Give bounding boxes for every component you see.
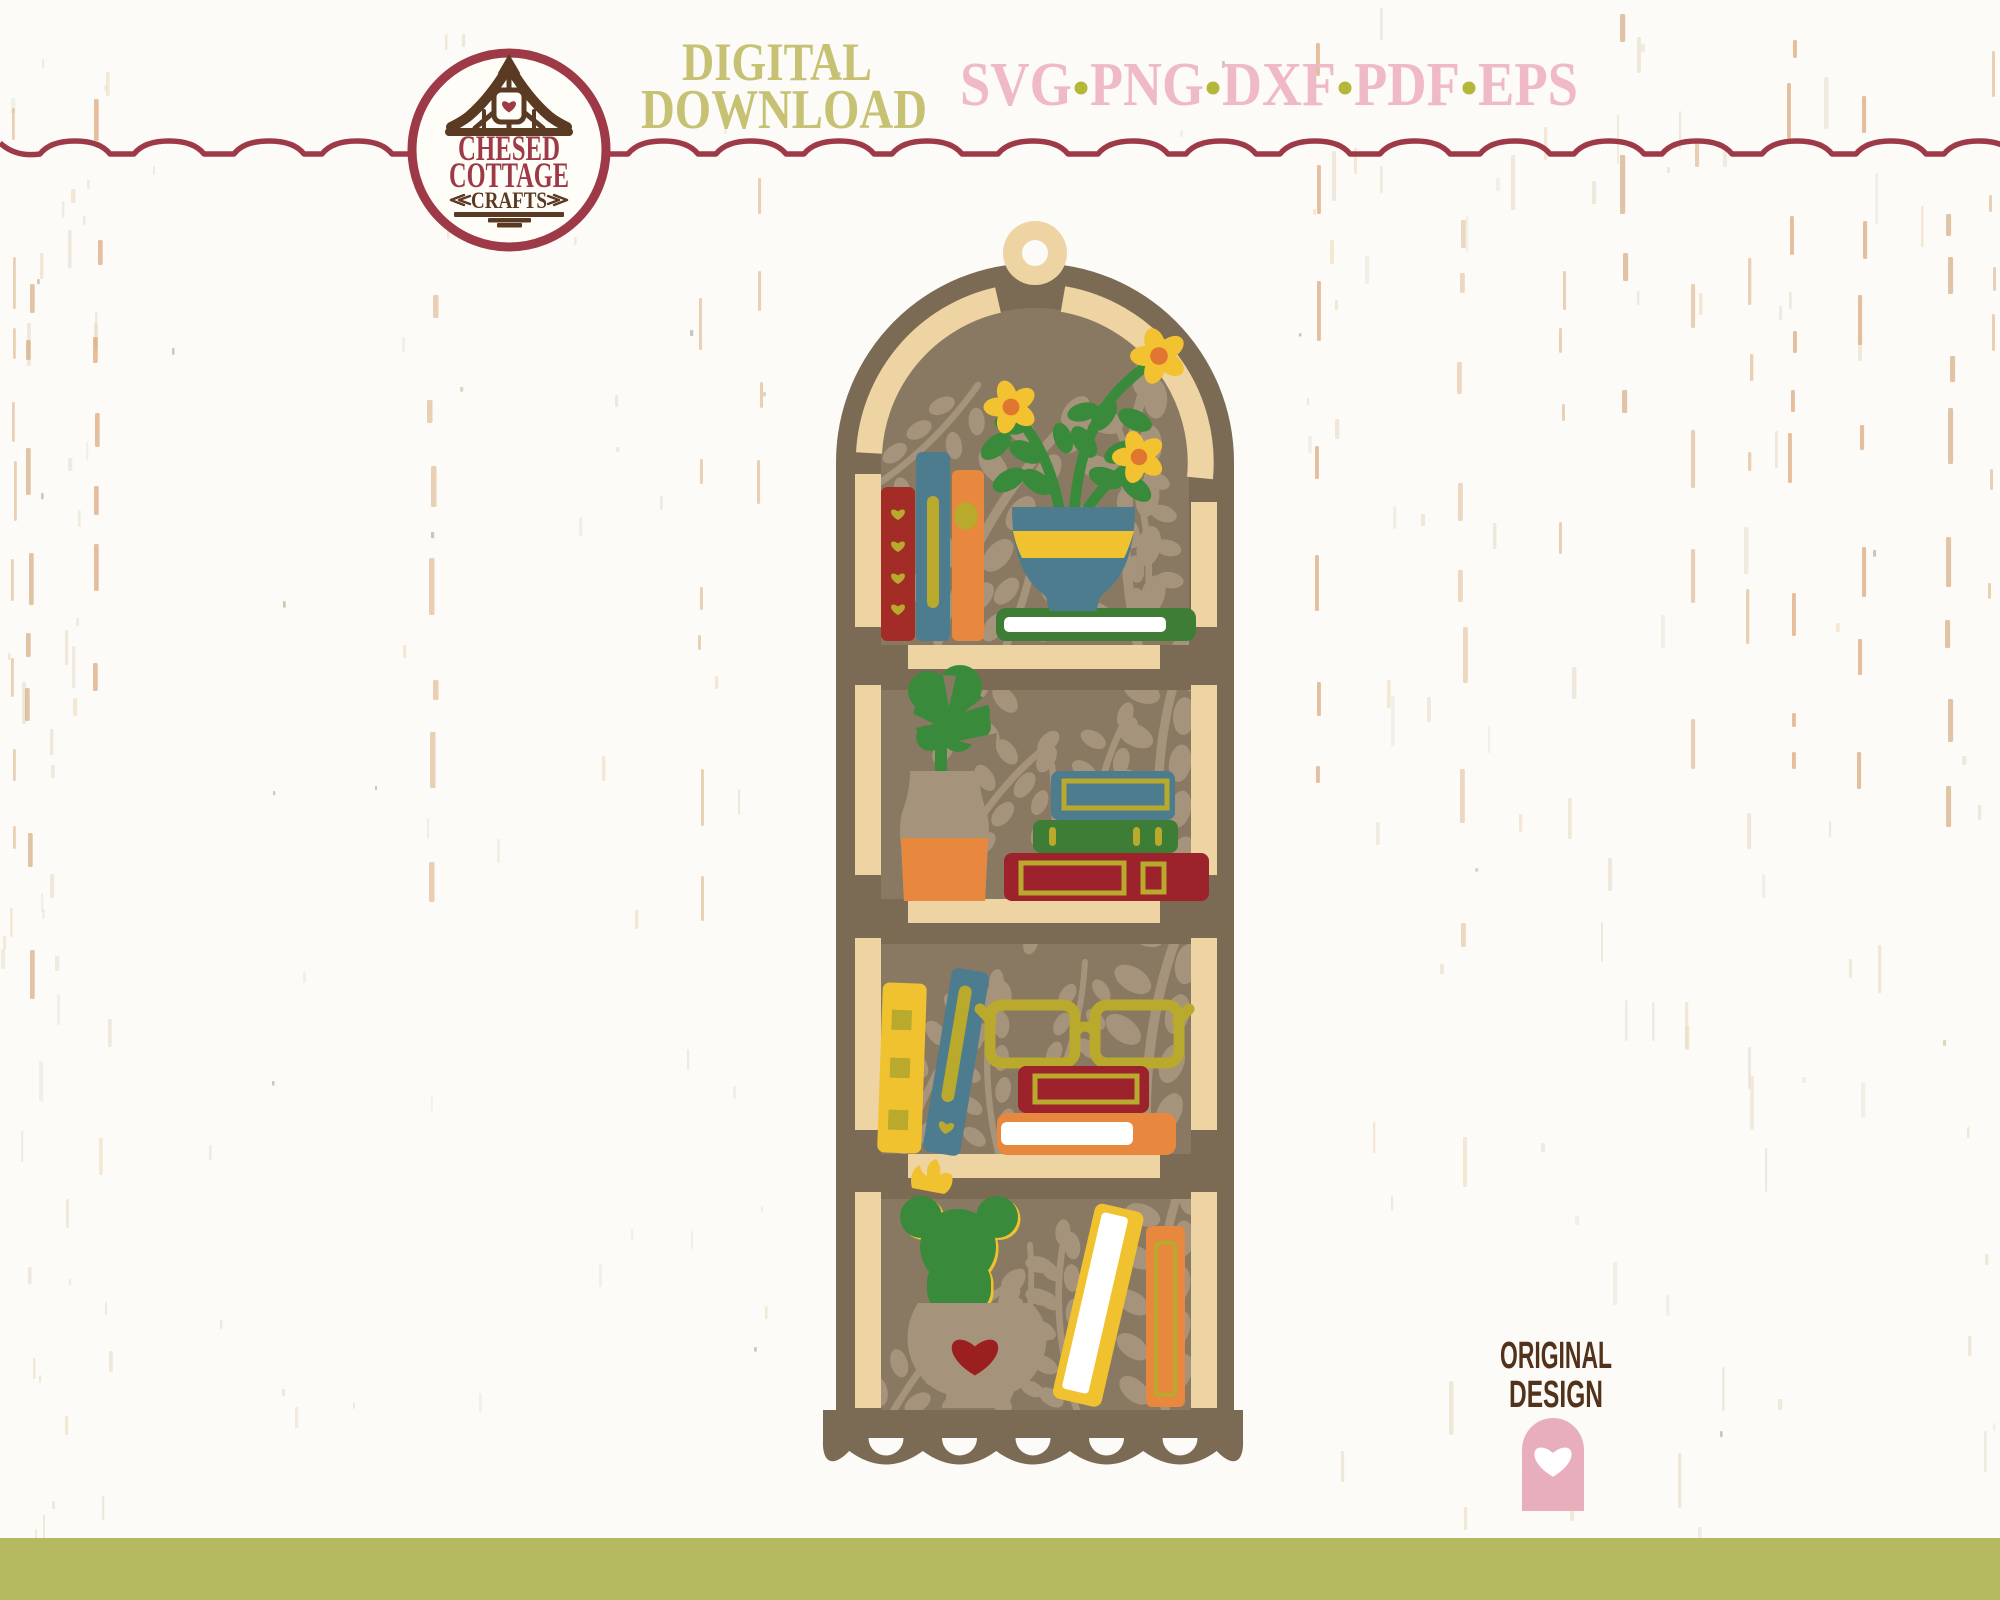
svg-text:SVG: SVG (960, 51, 1072, 119)
svg-text:PDF: PDF (1354, 51, 1460, 119)
svg-text:DOWNLOAD: DOWNLOAD (641, 79, 927, 141)
svg-text:DXF: DXF (1222, 51, 1336, 119)
svg-text:PNG: PNG (1090, 51, 1204, 119)
svg-text:EPS: EPS (1478, 51, 1578, 119)
svg-text:DESIGN: DESIGN (1509, 1374, 1603, 1416)
svg-text:ORIGINAL: ORIGINAL (1500, 1335, 1612, 1377)
svg-text:CRAFTS: CRAFTS (471, 188, 547, 213)
